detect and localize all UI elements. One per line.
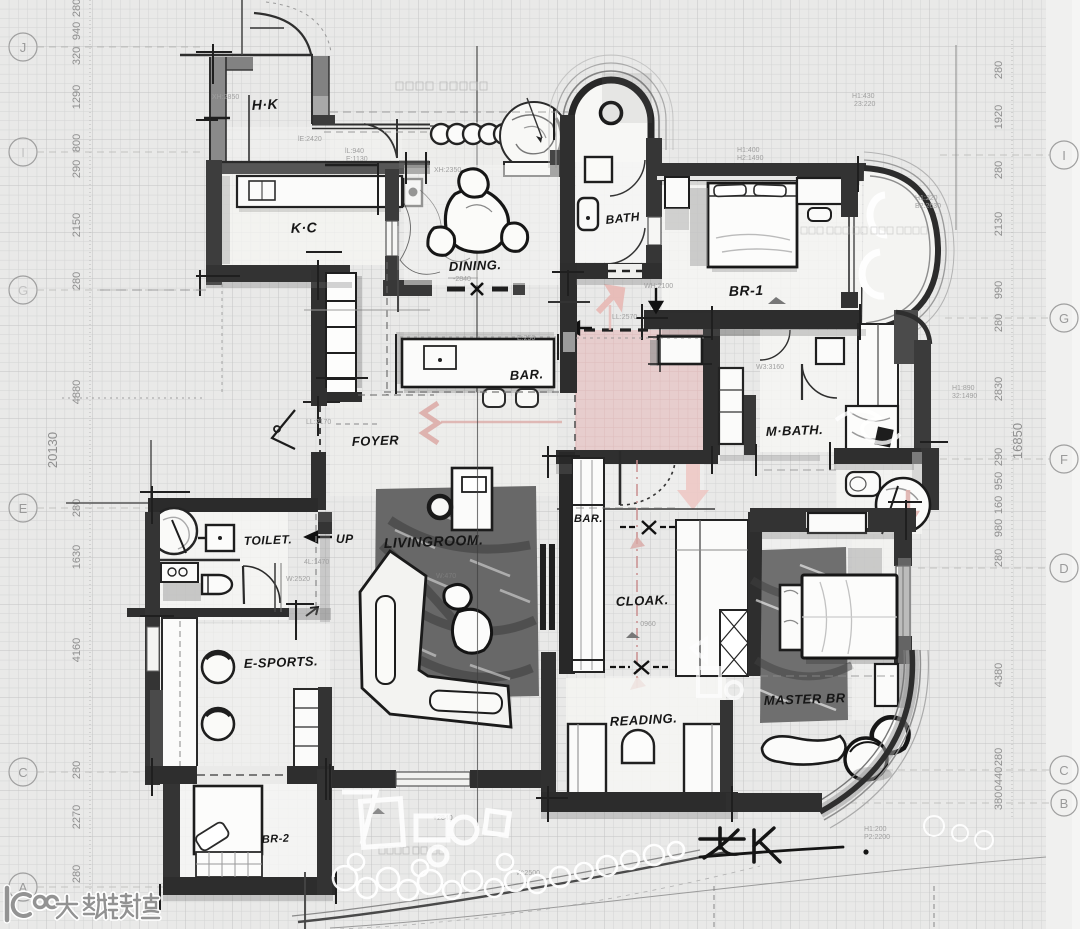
svg-text:H1:200: H1:200 [864, 826, 887, 833]
svg-text:UP: UP [336, 532, 354, 546]
svg-text:950: 950 [993, 472, 1005, 490]
svg-text:K·C: K·C [291, 219, 318, 236]
svg-text:4880: 4880 [71, 380, 83, 404]
svg-text:W:2520: W:2520 [286, 576, 310, 583]
svg-text:1920: 1920 [993, 105, 1005, 129]
svg-text:280: 280 [71, 865, 83, 883]
svg-text:4380: 4380 [993, 663, 1005, 687]
svg-text:280: 280 [71, 0, 83, 17]
svg-text:MASTER BR: MASTER BR [764, 690, 846, 708]
svg-text:280: 280 [993, 549, 1005, 567]
svg-text:BR-1: BR-1 [729, 282, 764, 299]
svg-text:TOILET.: TOILET. [244, 532, 293, 548]
svg-text:20130: 20130 [45, 432, 60, 468]
svg-text:4160: 4160 [71, 638, 83, 662]
svg-text:1630: 1630 [71, 545, 83, 569]
svg-text:2270: 2270 [71, 805, 83, 829]
svg-text:23:220: 23:220 [854, 101, 876, 108]
svg-text:280: 280 [993, 314, 1005, 332]
svg-text:M·BATH.: M·BATH. [766, 422, 824, 439]
svg-text:280: 280 [71, 272, 83, 290]
svg-text:1290: 1290 [71, 85, 83, 109]
svg-text:D: D [1059, 561, 1068, 576]
svg-text:H1:220: H1:220 [915, 195, 938, 202]
svg-text:H·K: H·K [251, 96, 279, 113]
svg-text:BAR.: BAR. [574, 513, 603, 525]
svg-text:C: C [1059, 763, 1068, 778]
svg-text:FOYER: FOYER [352, 432, 400, 449]
svg-text:290: 290 [71, 160, 83, 178]
svg-text:lL:940: lL:940 [345, 148, 364, 155]
svg-text:0960: 0960 [640, 621, 656, 628]
svg-text:280: 280 [993, 748, 1005, 766]
svg-text:H2:1490: H2:1490 [737, 155, 764, 162]
svg-text:280: 280 [993, 161, 1005, 179]
svg-text:280: 280 [71, 761, 83, 779]
svg-text:P2:2200: P2:2200 [864, 834, 890, 841]
svg-text:-2840: -2840 [453, 276, 471, 283]
svg-text:990: 990 [993, 281, 1005, 299]
svg-text:16850: 16850 [1010, 423, 1025, 459]
svg-text:C: C [18, 765, 27, 780]
svg-text:I: I [21, 145, 25, 160]
svg-text:32:1490: 32:1490 [952, 393, 977, 400]
svg-text:2130: 2130 [993, 212, 1005, 236]
svg-text:380: 380 [993, 792, 1005, 810]
svg-text:2150: 2150 [71, 213, 83, 237]
svg-text:W3:3160: W3:3160 [756, 364, 784, 371]
svg-text:E: E [19, 501, 28, 516]
svg-text:WH:2100: WH:2100 [644, 283, 673, 290]
svg-text:G: G [18, 283, 28, 298]
svg-text:H1:890: H1:890 [952, 385, 975, 392]
svg-text:W:470: W:470 [436, 573, 456, 580]
svg-text:CLOAK.: CLOAK. [616, 592, 669, 609]
svg-text:H1:430: H1:430 [852, 93, 875, 100]
svg-text:980: 980 [993, 519, 1005, 537]
svg-text:BR-2: BR-2 [262, 833, 290, 846]
svg-text:LL:2570: LL:2570 [612, 314, 637, 321]
svg-text:E-SPORTS.: E-SPORTS. [244, 653, 319, 671]
svg-text:H1:400: H1:400 [737, 147, 760, 154]
svg-text:290: 290 [993, 448, 1005, 466]
svg-text:160: 160 [993, 496, 1005, 514]
svg-text:DINING.: DINING. [449, 257, 502, 274]
svg-text:800: 800 [71, 134, 83, 152]
svg-text:J: J [20, 40, 27, 55]
svg-text:E:1130: E:1130 [346, 156, 368, 163]
svg-text:G: G [1059, 311, 1069, 326]
svg-text:280: 280 [993, 61, 1005, 79]
svg-text:LL:2170: LL:2170 [306, 419, 331, 426]
svg-text:B2:2630: B2:2630 [915, 203, 941, 210]
svg-text:XH:2850: XH:2850 [212, 94, 239, 101]
svg-text:320: 320 [71, 47, 83, 65]
svg-text:2830: 2830 [993, 377, 1005, 401]
svg-text:lE:2420: lE:2420 [298, 136, 322, 143]
svg-text:4L:1470: 4L:1470 [304, 559, 329, 566]
svg-text:F: F [1060, 452, 1068, 467]
svg-text:940: 940 [71, 22, 83, 40]
svg-text:BAR.: BAR. [509, 366, 544, 383]
svg-text:XH:2350: XH:2350 [434, 167, 461, 174]
svg-text:B: B [1060, 796, 1069, 811]
svg-text:E:250: E:250 [517, 335, 535, 342]
svg-text:I: I [1062, 148, 1066, 163]
